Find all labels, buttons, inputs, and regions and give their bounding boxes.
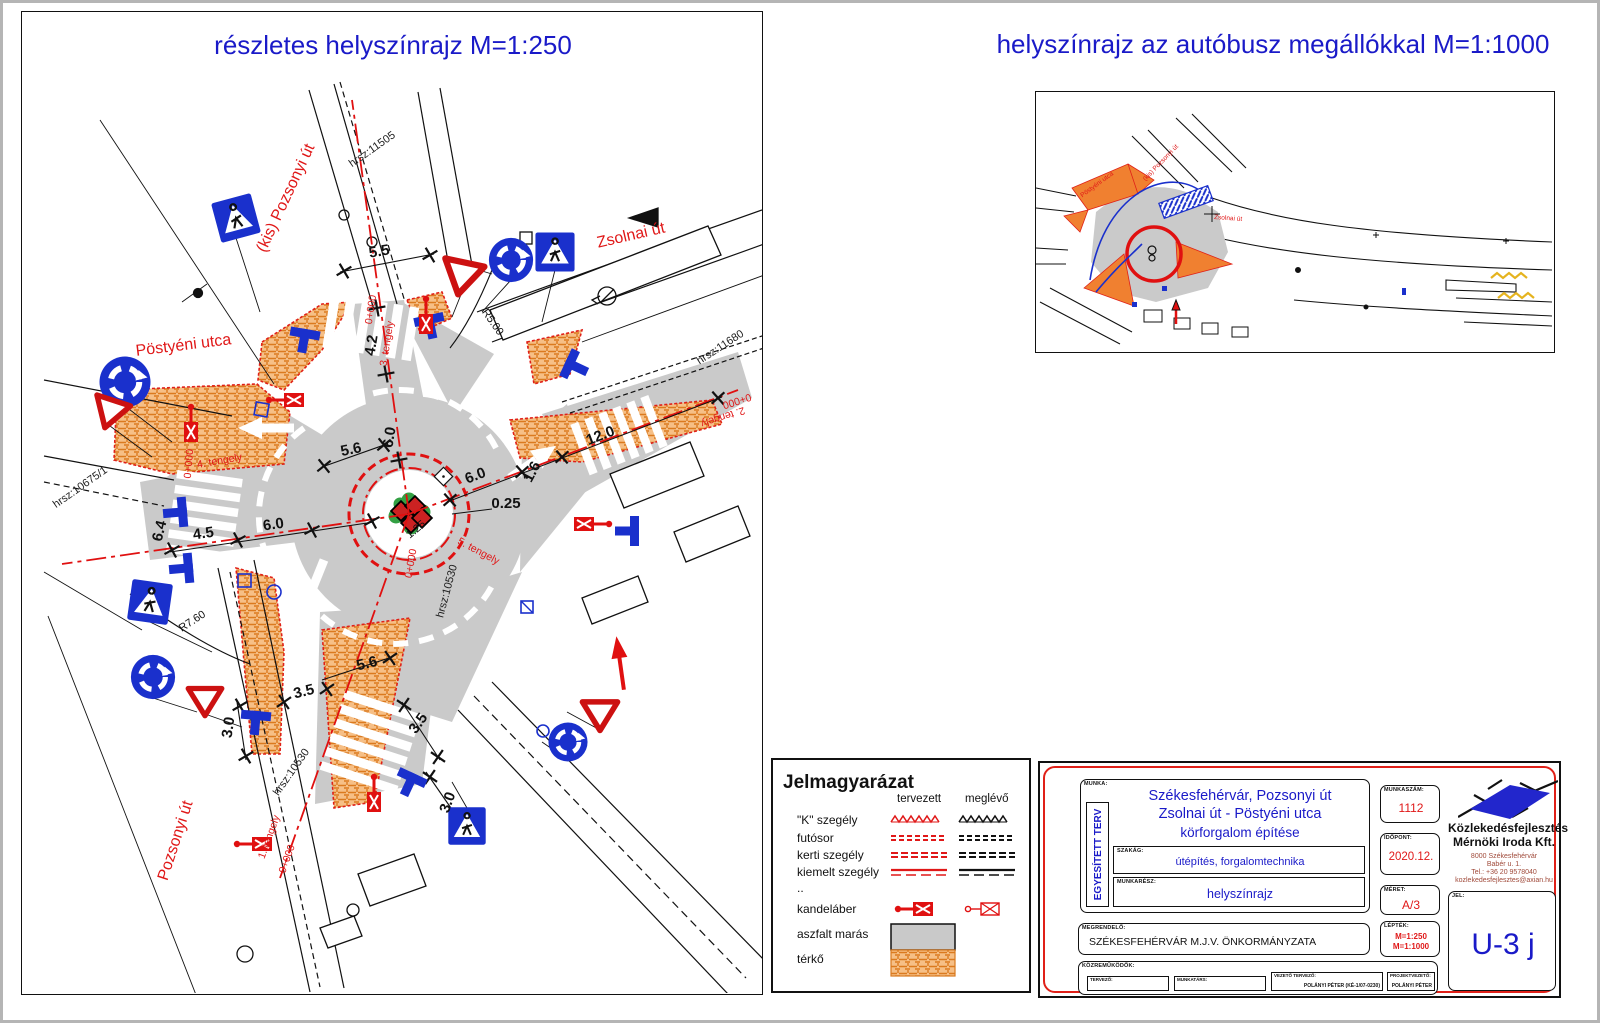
contributor-label: PROJEKTVEZETŐ: [1390,973,1431,978]
munkaszam-value: 1112 [1381,801,1441,815]
pedestrian-sign [211,193,261,243]
pedestrian-sign [535,232,574,271]
contributor-label: TERVEZŐ: [1090,977,1113,982]
parcel-label: hrsz:10530 [271,747,312,798]
legend-sample-kiemelt [891,870,1015,875]
legend-item-label: futósor [797,831,834,845]
project-title-line3: körforgalom építése [1113,825,1367,840]
size-box: MÉRET: A/3 [1380,885,1440,915]
company-addr3: Tel.: +36 20 9578040 [1448,869,1560,876]
munka-label: MUNKA: [1084,781,1108,787]
contributor-field: PROJEKTVEZETŐ: POLÁNYI PÉTER [1387,972,1435,991]
legend-sample-futosor [891,836,1013,840]
jel-value: U-3 j [1449,928,1557,962]
szakag-value: útépítés, forgalomtechnika [1114,856,1366,868]
contributor-value: POLÁNYI PÉTER [1392,983,1432,989]
project-title-line2: Zsolnai út - Pöstyéni utca [1113,806,1367,822]
overview-map-svg: (kis) Pozsonyi út Pöstyéni utca Zsolnai … [1036,92,1553,351]
detail-plan-svg: (kis) Pozsonyi út Zsolnai út Pöstyéni ut… [22,12,762,993]
client-box: MEGRENDELŐ: SZÉKESFEHÉRVÁR M.J.V. ÖNKORM… [1078,923,1370,955]
legend-col-existing: meglévő [965,793,1008,805]
contributors-box: KÖZREMŰKÖDŐK: TERVEZŐ: MUNKATÁRS: VEZETŐ… [1078,961,1438,995]
idopont-label: IDŐPONT: [1384,835,1412,841]
company-addr1: 8000 Székesfehérvár [1448,853,1560,860]
yield-sign [439,258,485,298]
dim-label: 3.0 [219,716,239,739]
company-logo [1458,775,1558,823]
street-label-pozsonyi: Pozsonyi út [155,798,197,882]
legend-sample-lamp-planned [895,902,933,916]
dim-label: R7.60 [177,608,208,634]
kozremukodok-label: KÖZREMŰKÖDŐK: [1082,963,1135,969]
company-name1: Közlekedésfejlesztés [1448,821,1560,835]
munkaresz-value: helyszínrajz [1114,887,1366,901]
legend-item-label: kiemelt szegély [797,865,879,879]
legend-item-label: kandeláber [797,902,856,916]
leptek-value1: M=1:250 [1381,932,1441,941]
contributor-field: VEZETŐ TERVEZŐ: POLÁNYI PÉTER (KÉ-1/07-0… [1271,972,1383,991]
company-name2: Mérnöki Iroda Kft. [1448,835,1560,849]
dim-label: 4.2 [362,334,382,357]
legend-sample-paving [891,950,955,976]
munkaresz-label: MUNKARÉSZ: [1117,879,1156,885]
legend-sample-lamp-existing [965,903,999,915]
company-email: kozlekedesfejlesztes@axian.hu [1448,877,1560,884]
legend-title: Jelmagyarázat [783,772,915,793]
legend-item-label: térkő [797,952,824,966]
munkaszam-label: MUNKASZÁM: [1384,787,1424,793]
roundabout-sign [548,722,587,761]
overview-title: helyszínrajz az autóbusz megállókkal M=1… [983,29,1563,60]
contributor-field: MUNKATÁRS: [1174,976,1266,991]
street-label-kis-pozsonyi: (kis) Pozsonyi út [253,141,318,255]
worknumber-box: MUNKASZÁM: 1112 [1380,785,1440,823]
project-title-line1: Székesfehérvár, Pozsonyi út [1113,788,1367,804]
legend-svg: Jelmagyarázat tervezett meglévő "K" szeg… [773,760,1029,991]
megrendelo-label: MEGRENDELŐ: [1082,925,1125,931]
contributor-value: POLÁNYI PÉTER (KÉ-1/07-0230) [1304,983,1380,989]
legend-sample-asphalt [891,924,955,950]
dim-label: 3.5 [292,681,316,703]
project-box: MUNKA: EGYESÍTETT TERV Székesfehérvár, P… [1080,779,1370,913]
legend-item-label: kerti szegély [797,848,864,862]
pedestrian-sign [127,579,173,625]
legend-item-label: .. [797,881,804,895]
szakag-label: SZAKÁG: [1117,848,1143,854]
contributor-label: MUNKATÁRS: [1177,977,1207,982]
szakag-box: SZAKÁG: útépítés, forgalomtechnika [1113,846,1365,874]
north-arrow [608,635,631,691]
drawing-code-box: JEL: U-3 j [1448,891,1556,991]
legend-sample-kerti [891,853,1015,857]
legend-item-label: "K" szegély [797,813,858,827]
dim-label: 6.0 [380,426,400,449]
yield-sign [582,702,617,731]
legend-col-planned: tervezett [897,793,942,805]
dim-label: 0.25 [491,495,520,512]
megrendelo-value: SZÉKESFEHÉRVÁR M.J.V. ÖNKORMÁNYZATA [1089,936,1316,948]
title-block: MUNKA: EGYESÍTETT TERV Székesfehérvár, P… [1038,761,1561,998]
axis-label: 1. tengely [256,813,283,861]
drawing-sheet: részletes helyszínrajz M=1:250 [0,0,1600,1023]
yield-sign [188,688,222,715]
legend-sample-k-curb [891,816,1007,822]
munka-value: EGYESÍTETT TERV [1093,802,1104,907]
parcel-label: hrsz:10675/1 [51,464,110,510]
overview-map-frame: (kis) Pozsonyi út Pöstyéni utca Zsolnai … [1035,91,1555,353]
meret-label: MÉRET: [1384,887,1406,893]
company-addr2: Babér u. 1. [1448,861,1560,868]
leptek-label: LÉPTÉK: [1384,923,1409,929]
detail-plan-frame: részletes helyszínrajz M=1:250 [21,11,763,995]
date-box: IDŐPONT: 2020.12. [1380,833,1440,875]
parcel-label: hrsz:11505 [347,129,398,170]
scale-box: LÉPTÉK: M=1:250 M=1:1000 [1380,921,1440,957]
munkaresz-box: MUNKARÉSZ: helyszínrajz [1113,877,1365,907]
legend-box: Jelmagyarázat tervezett meglévő "K" szeg… [771,758,1031,993]
map-street-label: (kis) Pozsonyi út [1142,143,1180,182]
contributor-field: TERVEZŐ: [1087,976,1169,991]
roundabout-sign [489,238,533,282]
legend-item-label: aszfalt marás [797,927,868,941]
meret-value: A/3 [1381,898,1441,912]
roundabout-sign [131,655,175,699]
pedestrian-sign [448,807,485,844]
idopont-value: 2020.12. [1381,851,1441,863]
jel-label: JEL: [1452,893,1465,899]
dim-label: 4.5 [192,524,215,544]
dim-label: 6.0 [262,515,285,535]
dim-label: 5.5 [367,241,390,261]
leptek-value2: M=1:1000 [1381,942,1441,951]
contributor-label: VEZETŐ TERVEZŐ: [1274,973,1316,978]
munka-vertical-box: EGYESÍTETT TERV [1086,802,1109,907]
street-label-postyeni: Pöstyéni utca [135,331,233,360]
